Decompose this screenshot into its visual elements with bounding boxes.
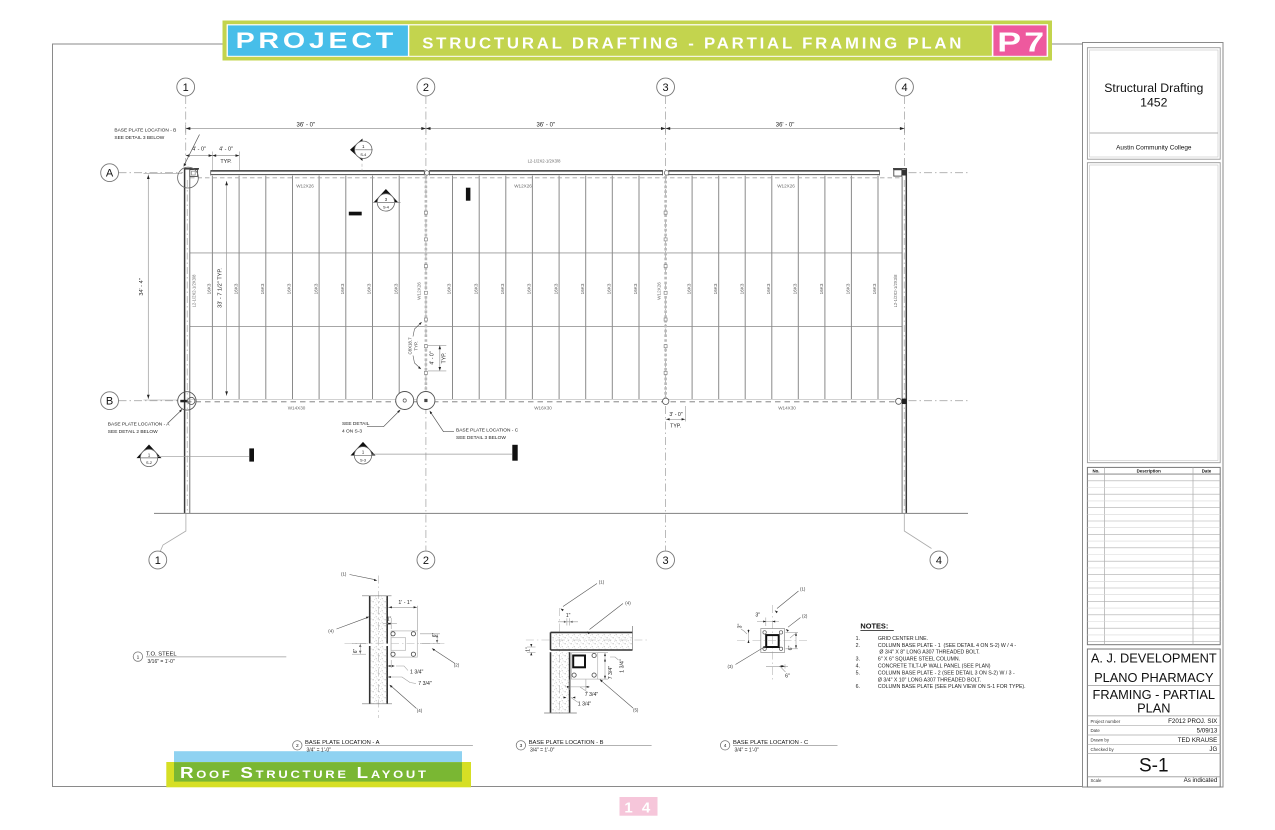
svg-text:NOTES:: NOTES: — [860, 622, 888, 631]
svg-text:F2012 PROJ. SIX: F2012 PROJ. SIX — [1168, 718, 1217, 725]
svg-text:L2-1/2X2-1/2X3/8: L2-1/2X2-1/2X3/8 — [191, 274, 196, 307]
svg-text:C8X18.7: C8X18.7 — [407, 337, 412, 355]
svg-text:16K3: 16K3 — [580, 283, 585, 294]
svg-text:7 3/4": 7 3/4" — [585, 692, 599, 698]
svg-text:Roof Structure Layout: Roof Structure Layout — [180, 763, 429, 781]
svg-text:1 4: 1 4 — [624, 799, 652, 816]
svg-text:3.: 3. — [856, 657, 860, 663]
svg-text:SEE DETAIL 3 BELOW: SEE DETAIL 3 BELOW — [114, 135, 164, 141]
svg-text:1: 1 — [183, 82, 189, 94]
svg-text:BASE PLATE LOCATION - B: BASE PLATE LOCATION - B — [114, 128, 176, 134]
svg-text:W14X30: W14X30 — [288, 405, 306, 410]
svg-text:STRUCTURAL DRAFTING - PARTIAL: STRUCTURAL DRAFTING - PARTIAL FRAMING PL… — [422, 35, 964, 52]
svg-text:1: 1 — [155, 555, 161, 567]
svg-text:A. J. DEVELOPMENT: A. J. DEVELOPMENT — [1091, 651, 1217, 666]
svg-text:16K3: 16K3 — [340, 283, 345, 294]
svg-text:No.: No. — [1092, 469, 1099, 474]
svg-text:3' - 0": 3' - 0" — [669, 412, 682, 418]
svg-text:4' - 0": 4' - 0" — [219, 147, 233, 153]
svg-text:SEE DETAIL 2 BELOW: SEE DETAIL 2 BELOW — [108, 429, 158, 435]
svg-text:(4): (4) — [625, 600, 631, 605]
svg-text:S-4: S-4 — [383, 206, 389, 210]
svg-text:(4): (4) — [328, 628, 334, 633]
svg-text:1": 1" — [526, 647, 532, 652]
svg-text:1": 1" — [387, 616, 392, 622]
svg-text:1 3/4": 1 3/4" — [620, 659, 626, 673]
svg-text:16K3: 16K3 — [633, 283, 638, 294]
svg-text:(4): (4) — [417, 708, 423, 713]
svg-text:SEE DETAIL 3 BELOW: SEE DETAIL 3 BELOW — [456, 435, 506, 441]
svg-text:BASE PLATE LOCATION - C: BASE PLATE LOCATION - C — [456, 427, 519, 433]
svg-text:CONCRETE TILT-UP WALL PANEL (S: CONCRETE TILT-UP WALL PANEL (SEE PLAN) — [878, 664, 991, 670]
svg-text:1 3/4": 1 3/4" — [410, 669, 424, 675]
svg-text:16K3: 16K3 — [287, 283, 292, 294]
svg-text:Checked by: Checked by — [1091, 747, 1115, 752]
svg-text:3: 3 — [663, 555, 669, 567]
svg-text:16K3: 16K3 — [553, 283, 558, 294]
svg-text:6": 6" — [785, 674, 790, 680]
svg-text:1": 1" — [566, 613, 571, 619]
svg-text:34' - 4": 34' - 4" — [139, 278, 145, 295]
svg-text:W12X26: W12X26 — [777, 184, 795, 189]
svg-text:W16X30: W16X30 — [534, 405, 552, 410]
svg-text:Drawn by: Drawn by — [1091, 738, 1110, 743]
svg-text:2: 2 — [423, 82, 429, 94]
svg-text:TYP.: TYP. — [414, 341, 419, 350]
svg-text:(3): (3) — [728, 664, 734, 669]
svg-text:4: 4 — [936, 555, 942, 567]
svg-text:As indicated: As indicated — [1184, 777, 1218, 784]
svg-text:16K3: 16K3 — [393, 283, 398, 294]
svg-text:16K3: 16K3 — [793, 283, 798, 294]
svg-text:PROJECT: PROJECT — [236, 29, 397, 53]
svg-text:S-3: S-3 — [360, 459, 366, 463]
svg-text:Date: Date — [1202, 469, 1212, 474]
svg-text:1.: 1. — [856, 636, 860, 642]
svg-text:TYP.: TYP. — [220, 159, 231, 165]
svg-text:7 3/4": 7 3/4" — [608, 666, 614, 680]
svg-text:3: 3 — [663, 82, 669, 94]
svg-text:TYP.: TYP. — [670, 424, 681, 430]
svg-text:33' - 7 1/2" TYP.: 33' - 7 1/2" TYP. — [217, 268, 223, 308]
svg-text:COLUMN BASE PLATE - 1 (SEE DE: COLUMN BASE PLATE - 1 (SEE DETAIL 4 ON S… — [878, 643, 1017, 649]
svg-text:PLAN: PLAN — [1137, 701, 1170, 716]
svg-text:Scale: Scale — [1091, 778, 1103, 783]
svg-text:2: 2 — [296, 743, 299, 749]
svg-text:B: B — [106, 396, 113, 408]
svg-text:4: 4 — [724, 743, 727, 749]
svg-text:36' - 0": 36' - 0" — [536, 122, 555, 128]
svg-text:(1): (1) — [341, 571, 347, 576]
svg-text:1452: 1452 — [1140, 96, 1168, 110]
svg-text:7 3/4": 7 3/4" — [418, 681, 432, 687]
svg-text:16K3: 16K3 — [260, 283, 265, 294]
svg-text:16K3: 16K3 — [233, 283, 238, 294]
svg-text:(5): (5) — [633, 708, 639, 713]
svg-text:SEE DETAIL: SEE DETAIL — [342, 421, 370, 427]
svg-text:PLANO PHARMACY: PLANO PHARMACY — [1094, 670, 1214, 685]
svg-text:S-1: S-1 — [1139, 755, 1169, 776]
svg-text:S-4: S-4 — [360, 153, 366, 157]
svg-text:(1): (1) — [800, 587, 806, 592]
svg-text:16K3: 16K3 — [527, 283, 532, 294]
svg-text:4' - 0": 4' - 0" — [430, 351, 436, 364]
svg-text:6" X 6" SQUARE STEEL COLUMN.: 6" X 6" SQUARE STEEL COLUMN. — [878, 657, 960, 663]
svg-text:1' - 1": 1' - 1" — [398, 600, 411, 606]
svg-text:16K3: 16K3 — [500, 283, 505, 294]
svg-text:GRID CENTER LINE.: GRID CENTER LINE. — [878, 636, 928, 642]
svg-text:5/09/13: 5/09/13 — [1197, 728, 1218, 735]
svg-text:S-2: S-2 — [146, 461, 152, 465]
svg-text:16K3: 16K3 — [766, 283, 771, 294]
svg-text:JG: JG — [1209, 746, 1217, 753]
svg-text:1: 1 — [137, 655, 140, 661]
svg-text:1 3/4": 1 3/4" — [578, 701, 592, 707]
svg-text:16K3: 16K3 — [313, 283, 318, 294]
svg-text:W12X26: W12X26 — [656, 282, 661, 300]
svg-text:3/4" = 1'-0": 3/4" = 1'-0" — [530, 748, 555, 754]
svg-text:3/4" = 1'-0": 3/4" = 1'-0" — [735, 748, 760, 754]
svg-text:36' - 0": 36' - 0" — [296, 122, 315, 128]
svg-text:A: A — [106, 168, 114, 180]
svg-text:16K3: 16K3 — [367, 283, 372, 294]
svg-text:3/16" = 1'-0": 3/16" = 1'-0" — [148, 659, 175, 665]
svg-text:Project number: Project number — [1091, 719, 1121, 724]
svg-text:Description: Description — [1137, 469, 1161, 474]
svg-text:16K3: 16K3 — [713, 283, 718, 294]
svg-text:W14X30: W14X30 — [778, 405, 796, 410]
svg-text:3/4" = 1'-0": 3/4" = 1'-0" — [307, 748, 332, 754]
svg-text:2.: 2. — [856, 643, 860, 649]
svg-text:4: 4 — [901, 82, 907, 94]
svg-text:6": 6" — [788, 645, 794, 650]
svg-text:16K3: 16K3 — [607, 283, 612, 294]
svg-text:6.: 6. — [856, 684, 860, 690]
svg-text:4 ON S-3: 4 ON S-3 — [342, 428, 362, 434]
svg-text:5.: 5. — [856, 670, 860, 676]
svg-text:16K3: 16K3 — [686, 283, 691, 294]
svg-text:16K3: 16K3 — [819, 283, 824, 294]
svg-text:(1): (1) — [599, 579, 605, 584]
svg-text:36' - 0": 36' - 0" — [776, 122, 795, 128]
svg-text:4.: 4. — [856, 664, 860, 670]
svg-text:TYP.: TYP. — [442, 353, 448, 364]
svg-text:6": 6" — [353, 649, 359, 654]
svg-text:3: 3 — [520, 743, 523, 749]
svg-text:COLUMN BASE PLATE - 2 (SEE DET: COLUMN BASE PLATE - 2 (SEE DETAIL 3 ON S… — [878, 670, 1015, 676]
svg-text:W12X26: W12X26 — [514, 184, 532, 189]
svg-text:4' - 0": 4' - 0" — [192, 147, 206, 153]
svg-text:COLUMN BASE PLATE (SEE PLAN VI: COLUMN BASE PLATE (SEE PLAN VIEW ON S-1 … — [878, 684, 1026, 690]
svg-text:TED KRAUSE: TED KRAUSE — [1178, 737, 1218, 744]
svg-text:W12X26: W12X26 — [417, 282, 422, 300]
svg-text:Structural Drafting: Structural Drafting — [1104, 81, 1203, 95]
svg-text:P7: P7 — [997, 27, 1047, 58]
svg-text:16K3: 16K3 — [447, 283, 452, 294]
svg-text:16K3: 16K3 — [207, 283, 212, 294]
svg-text:16K3: 16K3 — [872, 283, 877, 294]
svg-text:BASE PLATE LOCATION - A: BASE PLATE LOCATION - A — [305, 740, 380, 746]
svg-text:3": 3" — [737, 623, 743, 628]
svg-text:L2-1/2X2-1/2X3/8: L2-1/2X2-1/2X3/8 — [893, 274, 898, 307]
svg-text:BASE PLATE LOCATION - C: BASE PLATE LOCATION - C — [733, 740, 808, 746]
svg-text:Ø 3/4" X 10" LONG A307 THREADE: Ø 3/4" X 10" LONG A307 THREADED BOLT. — [878, 677, 981, 683]
svg-text:BASE PLATE LOCATION - A: BASE PLATE LOCATION - A — [108, 421, 170, 427]
svg-text:2: 2 — [423, 555, 429, 567]
svg-text:W12X26: W12X26 — [296, 184, 314, 189]
svg-text:16K3: 16K3 — [473, 283, 478, 294]
svg-text:16K3: 16K3 — [846, 283, 851, 294]
svg-text:Ø 3/4" X 8" LONG A307 THREADED: Ø 3/4" X 8" LONG A307 THREADED BOLT. — [879, 650, 979, 656]
svg-text:(2): (2) — [802, 613, 808, 618]
svg-text:Austin Community College: Austin Community College — [1116, 144, 1192, 151]
svg-text:BASE PLATE LOCATION - B: BASE PLATE LOCATION - B — [529, 740, 604, 746]
svg-text:Date: Date — [1091, 728, 1101, 733]
svg-text:3": 3" — [755, 613, 760, 619]
svg-text:L2-1/2X2-1/2X3/8: L2-1/2X2-1/2X3/8 — [528, 158, 561, 163]
svg-text:16K3: 16K3 — [739, 283, 744, 294]
